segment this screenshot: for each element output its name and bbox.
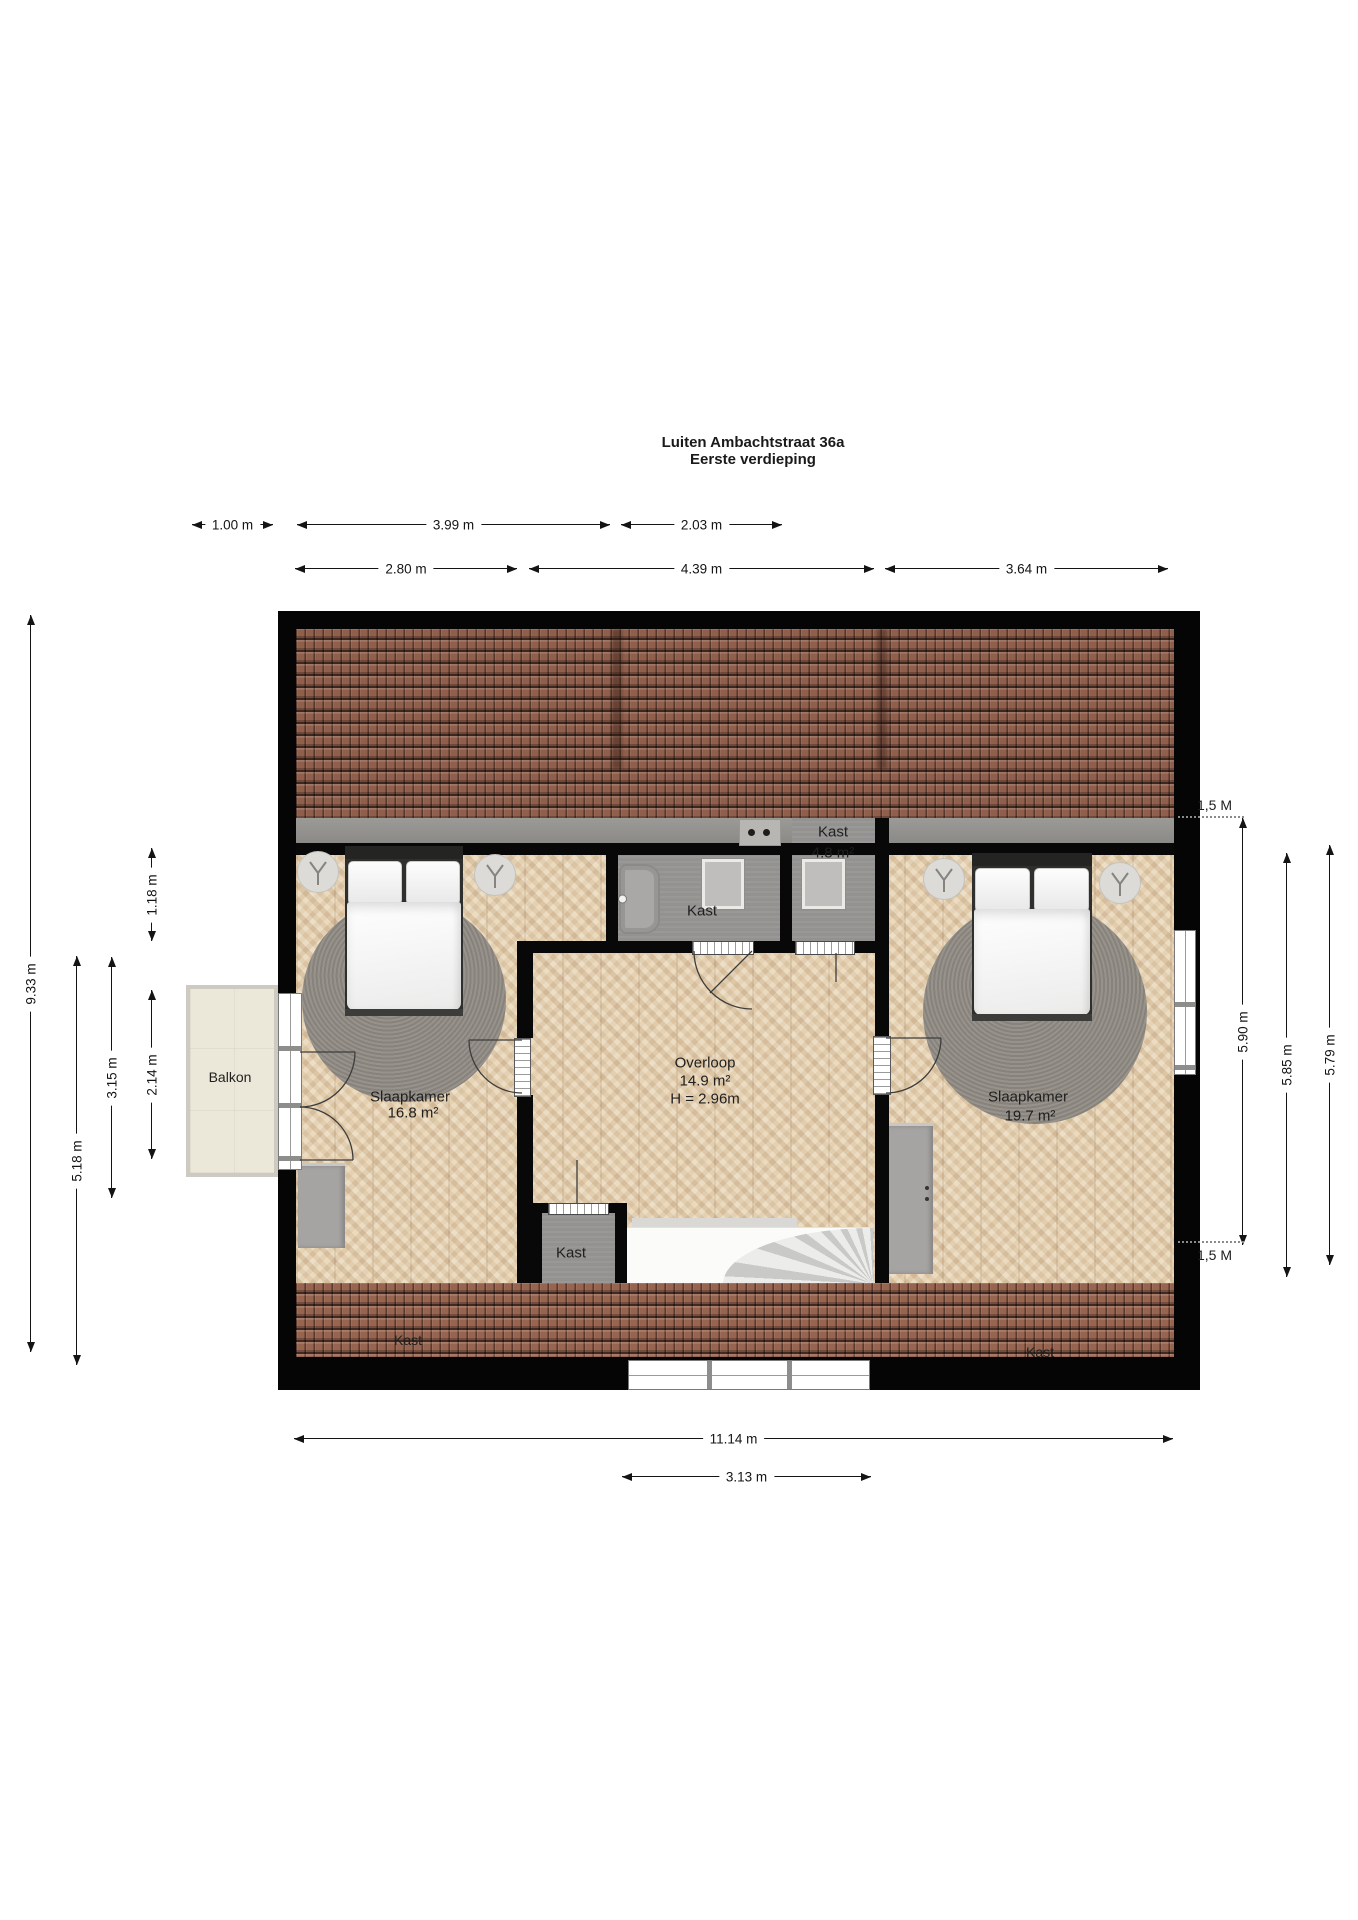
- dim-left-5-18: 5.18 m: [76, 956, 77, 1365]
- door-swing-arcs: [0, 0, 1358, 1920]
- marker-roofheight-top: 1,5 M: [1197, 797, 1232, 813]
- floorplan-canvas: Luiten Ambachtstraat 36a Eerste verdiepi…: [0, 0, 1358, 1920]
- room-label-closet-topright-area: 4.8 m²: [812, 846, 855, 861]
- bedroom-left-door-arc: [469, 1040, 522, 1093]
- room-label-bedroom-right-name: Slaapkamer: [988, 1090, 1068, 1105]
- dim-bottom-total-width: 11.14 m: [294, 1438, 1173, 1439]
- dim-top2-bedroom-right: 3.64 m: [885, 568, 1168, 569]
- dim-top2-bedroom-left: 2.80 m: [295, 568, 517, 569]
- dim-bottom-window: 3.13 m: [622, 1476, 871, 1477]
- balcony-door-arc: [300, 1107, 353, 1160]
- room-label-landing-height: H = 2.96m: [670, 1092, 740, 1107]
- dim-top1-balcony: 1.00 m: [192, 524, 273, 525]
- dim-left-2-14: 2.14 m: [151, 990, 152, 1159]
- dim-left-1-18: 1.18 m: [151, 848, 152, 941]
- room-label-bedroom-left-area: 16.8 m²: [388, 1106, 439, 1121]
- room-label-landing-area: 14.9 m²: [680, 1074, 731, 1089]
- dim-top1-closet: 2.03 m: [621, 524, 782, 525]
- room-label-bedroom-right-area: 19.7 m²: [1005, 1109, 1056, 1124]
- room-label-bedroom-left-name: Slaapkamer: [370, 1090, 450, 1105]
- dim-right-5-85: 5.85 m: [1286, 853, 1287, 1277]
- dim-right-5-79: 5.79 m: [1329, 845, 1330, 1265]
- dim-top1-bedroom-left: 3.99 m: [297, 524, 610, 525]
- marker-roofheight-bottom: 1,5 M: [1197, 1247, 1232, 1263]
- room-label-closet-topright-name: Kast: [818, 825, 848, 840]
- dim-left-total-depth: 9.33 m: [30, 615, 31, 1352]
- marker-roofheight-bottom-line: [1178, 1241, 1244, 1243]
- bedroom-right-door-arc: [886, 1038, 941, 1093]
- bath-door-arc: [694, 951, 752, 1009]
- room-label-closet-bottom-right: Kast: [1026, 1345, 1054, 1359]
- marker-roofheight-top-line: [1178, 816, 1244, 818]
- balcony-door-arc: [300, 1052, 355, 1107]
- room-label-closet-bottom-left: Kast: [394, 1333, 422, 1347]
- dim-left-3-15: 3.15 m: [111, 957, 112, 1198]
- dim-top2-landing: 4.39 m: [529, 568, 874, 569]
- room-label-closet-landing: Kast: [556, 1246, 586, 1261]
- room-label-landing-name: Overloop: [675, 1056, 736, 1071]
- room-label-closet-bath: Kast: [687, 904, 717, 919]
- room-label-balcony: Balkon: [209, 1070, 252, 1084]
- dim-right-5-90: 5.90 m: [1242, 818, 1243, 1245]
